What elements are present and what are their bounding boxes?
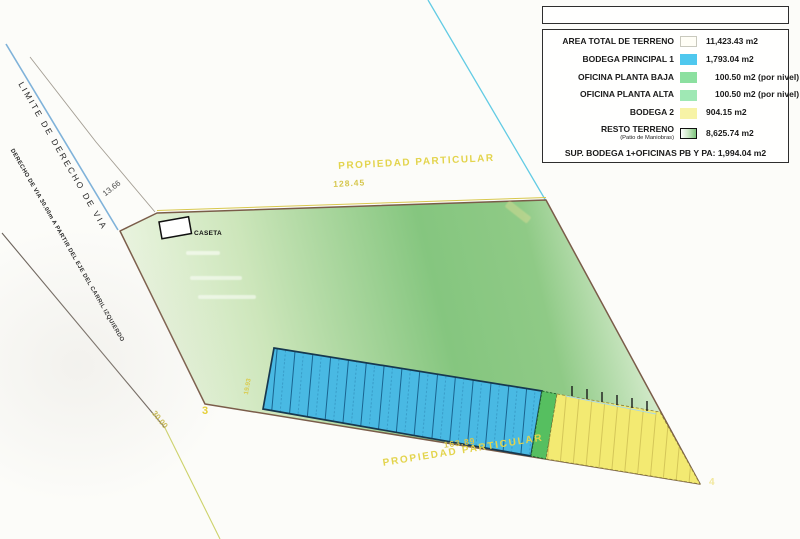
legend-table: AREA TOTAL DE TERRENO 11,423.43 m2 BODEG… (542, 29, 789, 163)
legend-row-bodega2: BODEGA 2 904.15 m2 (552, 108, 779, 119)
legend-value: 8,625.74 m2 (706, 129, 754, 138)
derecho-via-line-continuation (165, 428, 220, 539)
oficina-alta-swatch (680, 90, 697, 101)
bodega1-swatch (680, 54, 697, 65)
legend-value: 904.15 m2 (706, 108, 747, 117)
legend-label: BODEGA PRINCIPAL 1 (552, 55, 674, 64)
area-total-swatch (680, 36, 697, 47)
legend-row-oficina-baja: OFICINA PLANTA BAJA 100.50 m2 (por nivel… (552, 72, 779, 83)
legend-value: 100.50 m2 (por nivel) (706, 90, 799, 99)
bodega2-swatch (680, 108, 697, 119)
site-plan-page: PROPIEDAD PARTICULAR 128.45 PROPIEDAD PA… (0, 0, 800, 539)
legend-row-oficina-alta: OFICINA PLANTA ALTA 100.50 m2 (por nivel… (552, 90, 779, 101)
north-boundary-dimension: 128.45 (333, 177, 365, 189)
legend-footer-total: SUP. BODEGA 1+OFICINAS PB Y PA: 1,994.04… (552, 148, 779, 158)
legend-row-resto-terreno: RESTO TERRENO(Patio de Maniobras) 8,625.… (552, 125, 779, 141)
illegible-annotation (198, 295, 256, 299)
legend-label: OFICINA PLANTA BAJA (552, 73, 674, 82)
caseta-label: CASETA (194, 230, 222, 237)
resto-terreno-sublabel: (Patio de Maniobras) (552, 135, 674, 141)
resto-terreno-label: RESTO TERRENO (601, 124, 674, 134)
vertex-4-label: 4 (709, 477, 715, 488)
property-north-diagonal-line (428, 0, 546, 201)
legend-row-area-total: AREA TOTAL DE TERRENO 11,423.43 m2 (552, 36, 779, 47)
title-box (542, 6, 789, 24)
illegible-annotation (190, 276, 242, 280)
legend-value: 1,793.04 m2 (706, 55, 754, 64)
illegible-annotation (186, 251, 220, 255)
legend-label: BODEGA 2 (552, 108, 674, 117)
resto-terreno-swatch (680, 128, 697, 139)
oficina-baja-swatch (680, 72, 697, 83)
legend-label: OFICINA PLANTA ALTA (552, 90, 674, 99)
limite-derecho-via-line (6, 44, 118, 230)
legend-value: 100.50 m2 (por nivel) (706, 73, 799, 82)
legend-row-bodega1: BODEGA PRINCIPAL 1 1,793.04 m2 (552, 54, 779, 65)
legend-label: RESTO TERRENO(Patio de Maniobras) (552, 125, 674, 141)
legend-label: AREA TOTAL DE TERRENO (552, 37, 674, 46)
legend-value: 11,423.43 m2 (706, 37, 758, 46)
vertex-3-label: 3 (202, 405, 208, 417)
